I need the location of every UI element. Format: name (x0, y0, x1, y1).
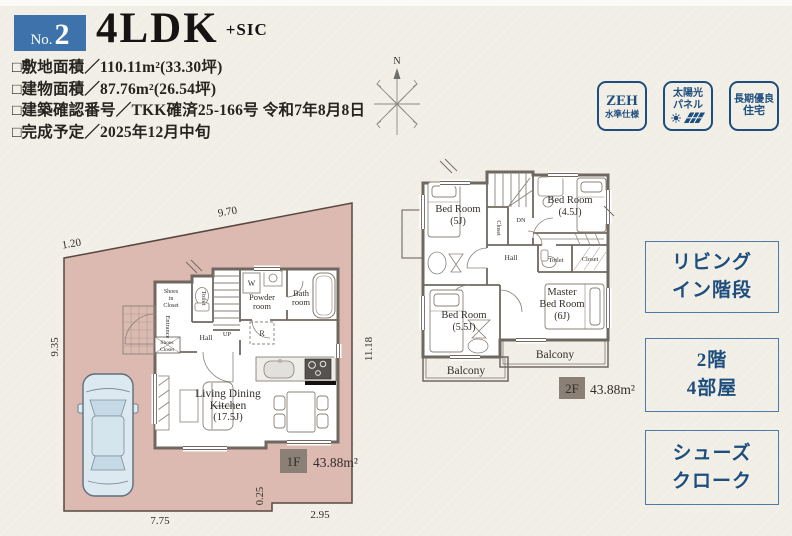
car-top-view (78, 374, 138, 496)
label-stairs-down: DN (516, 217, 526, 224)
dim-left: 9.35 (49, 337, 61, 357)
label-stairs-up: UP (223, 331, 232, 338)
label-bedroom5-1: Bed Room (435, 204, 480, 215)
kitchen-sink (264, 361, 294, 378)
label-bedroom45-2: (4.5J) (558, 207, 581, 218)
label-entrance: Entrance (164, 315, 171, 338)
dim-bottom-left: 7.75 (150, 515, 170, 527)
floor-plan-canvas: N (0, 0, 792, 536)
label-bedroom5-2: (5J) (450, 216, 466, 227)
dim-step: 0.25 (255, 487, 266, 505)
label-closet-right: Closet (582, 256, 599, 263)
label-shoes-closet-1: Shoes (160, 340, 173, 346)
label-hall-2f: Hall (505, 253, 518, 262)
label-bedroom55-1: Bed Room (441, 310, 486, 321)
label-bedroom55-2: (5.5J) (452, 322, 475, 333)
dining-table (287, 392, 315, 432)
label-bedroom45-1: Bed Room (547, 195, 592, 206)
label-shoes-in-closet-3: Closet (163, 303, 179, 309)
vanity-sink (264, 271, 282, 286)
compass-north-label: N (393, 56, 400, 67)
dim-top: 9.70 (217, 204, 238, 219)
stove (305, 359, 331, 379)
label-toilet-1f: Toilet (200, 290, 207, 305)
dim-bottom-right: 2.95 (310, 509, 330, 521)
label-ldk-1: Living Dining (195, 388, 261, 400)
label-bath-room-2: room (292, 297, 310, 307)
label-balcony-right: Balcony (536, 349, 575, 361)
label-ldk-2: Kitchen (210, 400, 247, 412)
label-closet-left: Closet (495, 220, 501, 236)
floor-plan-flyer: { "header": { "no_label": "No.", "no_val… (0, 0, 792, 536)
bed-55j (430, 290, 463, 352)
label-master-2: Bed Room (539, 299, 584, 310)
label-toilet-2f: Toilet (548, 257, 563, 264)
floor2-area: 43.88m² (590, 382, 635, 397)
kitchen-counter (256, 357, 336, 385)
label-balcony-left: Balcony (447, 365, 486, 377)
dim-right: 11.18 (363, 336, 375, 361)
floor2-badge-label: 2F (565, 381, 579, 396)
bathtub (313, 273, 335, 318)
compass-rose-icon (374, 68, 420, 135)
label-fridge: R (259, 329, 265, 338)
label-hall-1f: Hall (200, 333, 213, 342)
label-washer: W (248, 279, 256, 288)
label-master-1: Master (547, 287, 577, 298)
label-shoes-closet-2: Closet (160, 347, 175, 353)
dim-top-left: 1.20 (61, 236, 82, 251)
label-powder-room-2: room (253, 301, 271, 311)
label-shoes-in-closet-1: Shoes (164, 289, 179, 295)
label-ldk-3: (17.5J) (213, 412, 243, 423)
label-shoes-in-closet-2: in (169, 296, 174, 302)
floor1-badge-label: 1F (287, 454, 301, 469)
floor1-area: 43.88m² (313, 455, 358, 470)
label-master-3: (6J) (554, 311, 570, 322)
